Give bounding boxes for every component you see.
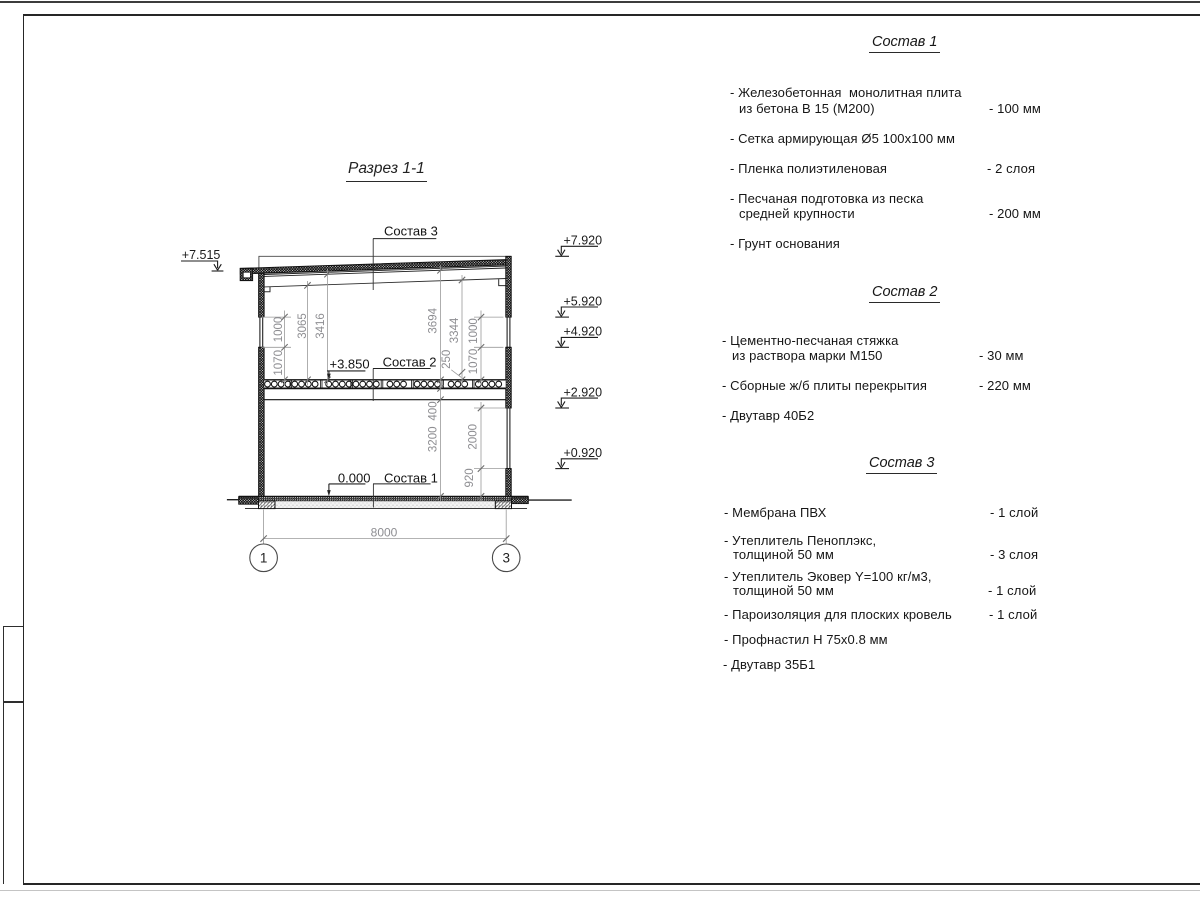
svg-text:1000: 1000	[273, 317, 285, 343]
svg-text:+7.920: +7.920	[564, 234, 603, 248]
svg-text:920: 920	[464, 468, 476, 487]
svg-text:1070: 1070	[468, 349, 480, 375]
svg-text:3065: 3065	[297, 313, 309, 339]
svg-text:3416: 3416	[315, 313, 327, 339]
svg-text:+5.920: +5.920	[564, 294, 603, 308]
svg-text:1000: 1000	[468, 318, 480, 344]
svg-text:2000: 2000	[468, 424, 480, 450]
svg-text:+3.850: +3.850	[330, 357, 370, 372]
svg-text:Состав 2: Состав 2	[383, 354, 437, 369]
svg-text:3: 3	[502, 551, 510, 566]
svg-text:+2.920: +2.920	[564, 385, 603, 399]
svg-text:1: 1	[260, 551, 268, 566]
svg-text:1070: 1070	[273, 350, 285, 376]
svg-text:8000: 8000	[371, 525, 398, 539]
svg-text:3200: 3200	[428, 427, 440, 453]
svg-text:3694: 3694	[428, 307, 440, 333]
svg-text:400: 400	[428, 401, 440, 420]
svg-text:3344: 3344	[449, 317, 461, 343]
svg-text:+4.920: +4.920	[564, 325, 603, 339]
svg-text:+7.515: +7.515	[182, 248, 221, 262]
svg-text:Состав 3: Состав 3	[384, 223, 438, 238]
svg-text:+0.920: +0.920	[564, 446, 603, 460]
svg-text:250: 250	[441, 350, 453, 369]
